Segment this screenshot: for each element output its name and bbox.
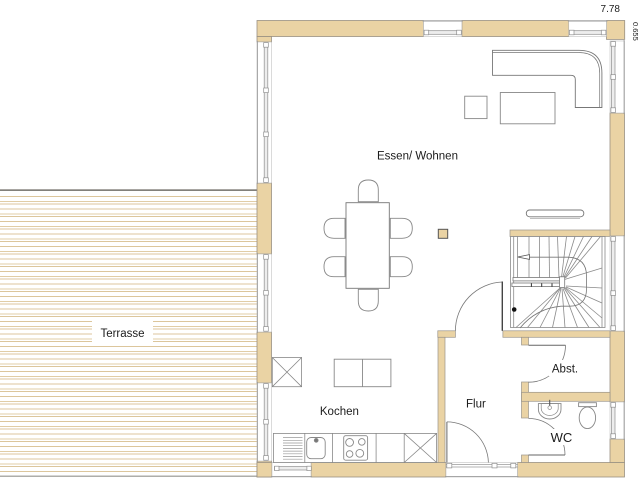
svg-text:Abst.: Abst.	[552, 364, 578, 376]
svg-text:Kochen: Kochen	[320, 406, 359, 418]
svg-text:WC: WC	[551, 430, 573, 445]
svg-text:7.78: 7.78	[601, 4, 621, 15]
svg-text:0.655: 0.655	[631, 22, 640, 41]
svg-text:Essen/ Wohnen: Essen/ Wohnen	[377, 151, 458, 163]
svg-text:Flur: Flur	[466, 399, 486, 411]
svg-text:Terrasse: Terrasse	[100, 328, 144, 340]
